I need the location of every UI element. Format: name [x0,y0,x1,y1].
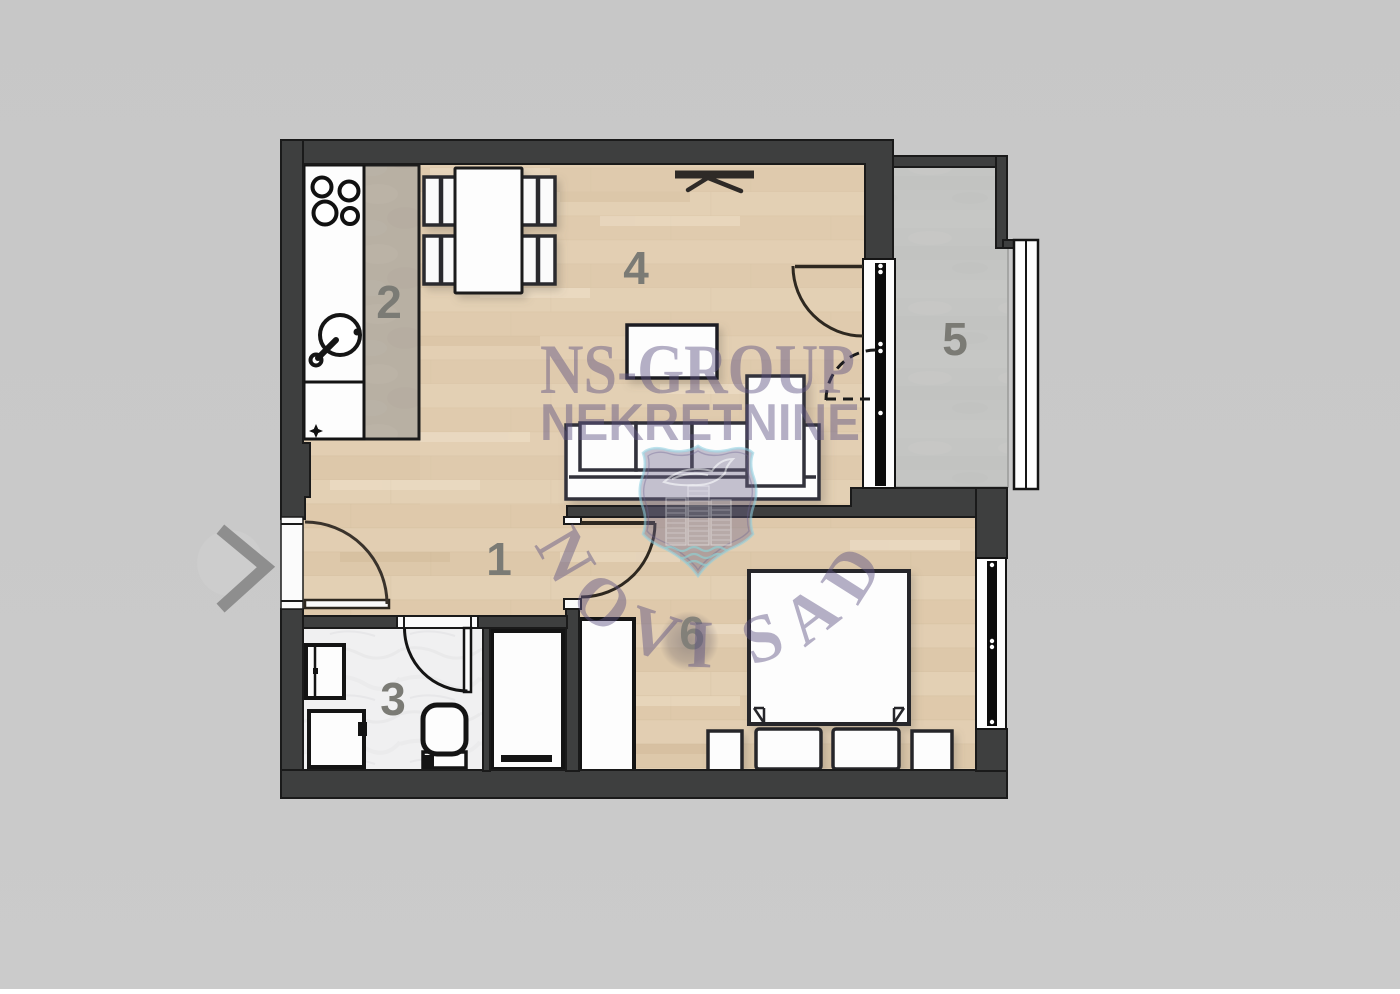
svg-text:1: 1 [486,533,512,585]
svg-text:2: 2 [376,276,402,328]
svg-text:3: 3 [380,673,406,725]
svg-text:5: 5 [942,313,968,365]
svg-text:4: 4 [623,242,649,294]
svg-text:NEKRETNINE: NEKRETNINE [540,394,860,452]
